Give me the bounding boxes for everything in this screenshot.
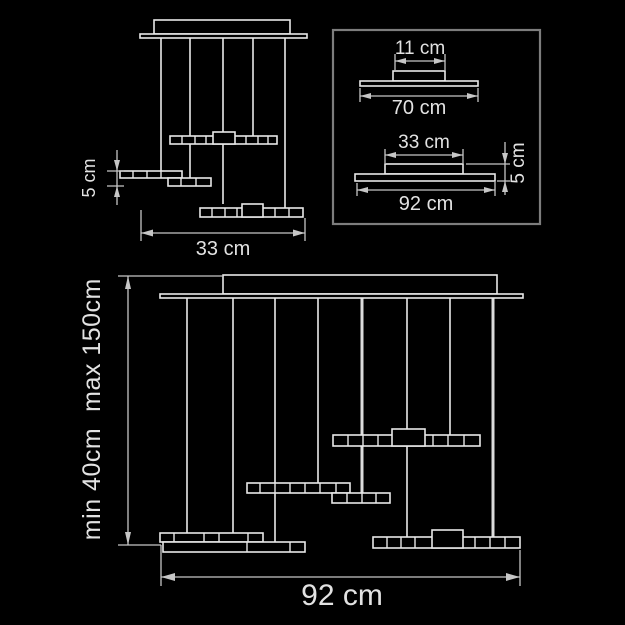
drawing-canvas: 5 cm 33 cm 11 cm [0,0,625,625]
arrow-down-icon [125,532,131,545]
bar-light [160,533,305,552]
max-drop-label: max 150cm [78,278,106,412]
arrow-left-icon [161,573,175,581]
small-front-view: 5 cm 33 cm [79,20,307,260]
inset-plate2-width-label: 92 cm [399,193,453,215]
small-width-label: 33 cm [196,238,250,260]
bar-light [120,171,211,186]
inset-bar-width-label: 33 cm [398,132,450,153]
large-front-view: max 150cm min 40cm 92 cm [78,275,523,612]
arrow-left-icon [357,187,368,193]
canopy-box [393,71,445,81]
arrow-right-icon [293,230,305,237]
canopy [154,20,290,34]
arrow-left-icon [385,152,396,158]
inset-thickness-label: 5 cm [508,142,529,183]
inset-box-width-label: 11 cm [395,38,445,59]
bar-light [247,483,390,503]
large-width-dimension: 92 cm [161,545,520,612]
large-width-label: 92 cm [301,579,383,612]
dimension-drawing: 5 cm 33 cm 11 cm [0,0,625,625]
drop-height-dimension: max 150cm min 40cm [78,276,223,545]
arrow-left-icon [360,93,371,99]
bar-plate [355,174,495,181]
small-thickness-label: 5 cm [79,158,99,197]
arrow-up-icon [125,276,131,289]
canopy [223,275,497,294]
bar-light [200,204,303,217]
arrow-up-icon [114,186,120,197]
arrow-right-icon [506,573,520,581]
small-thickness-dimension: 5 cm [79,150,124,205]
ceiling-plate [140,34,307,38]
detail-inset: 11 cm 70 cm 33 cm [333,30,540,224]
arrow-right-icon [452,152,463,158]
canopy-plate [360,81,478,86]
arrow-right-icon [484,187,495,193]
inset-plate-width-label: 70 cm [392,97,446,119]
bar-light [333,429,480,446]
inset-side-profile: 33 cm 5 cm 92 cm [355,132,529,215]
arrow-down-icon [114,160,120,171]
arrow-right-icon [467,93,478,99]
bar-light [373,530,520,548]
inset-top-profile: 11 cm 70 cm [360,38,478,119]
min-drop-label: min 40cm [78,428,106,540]
arrow-left-icon [141,230,153,237]
bar-light [170,132,277,144]
bar-box [385,164,463,174]
ceiling-plate [160,294,523,298]
